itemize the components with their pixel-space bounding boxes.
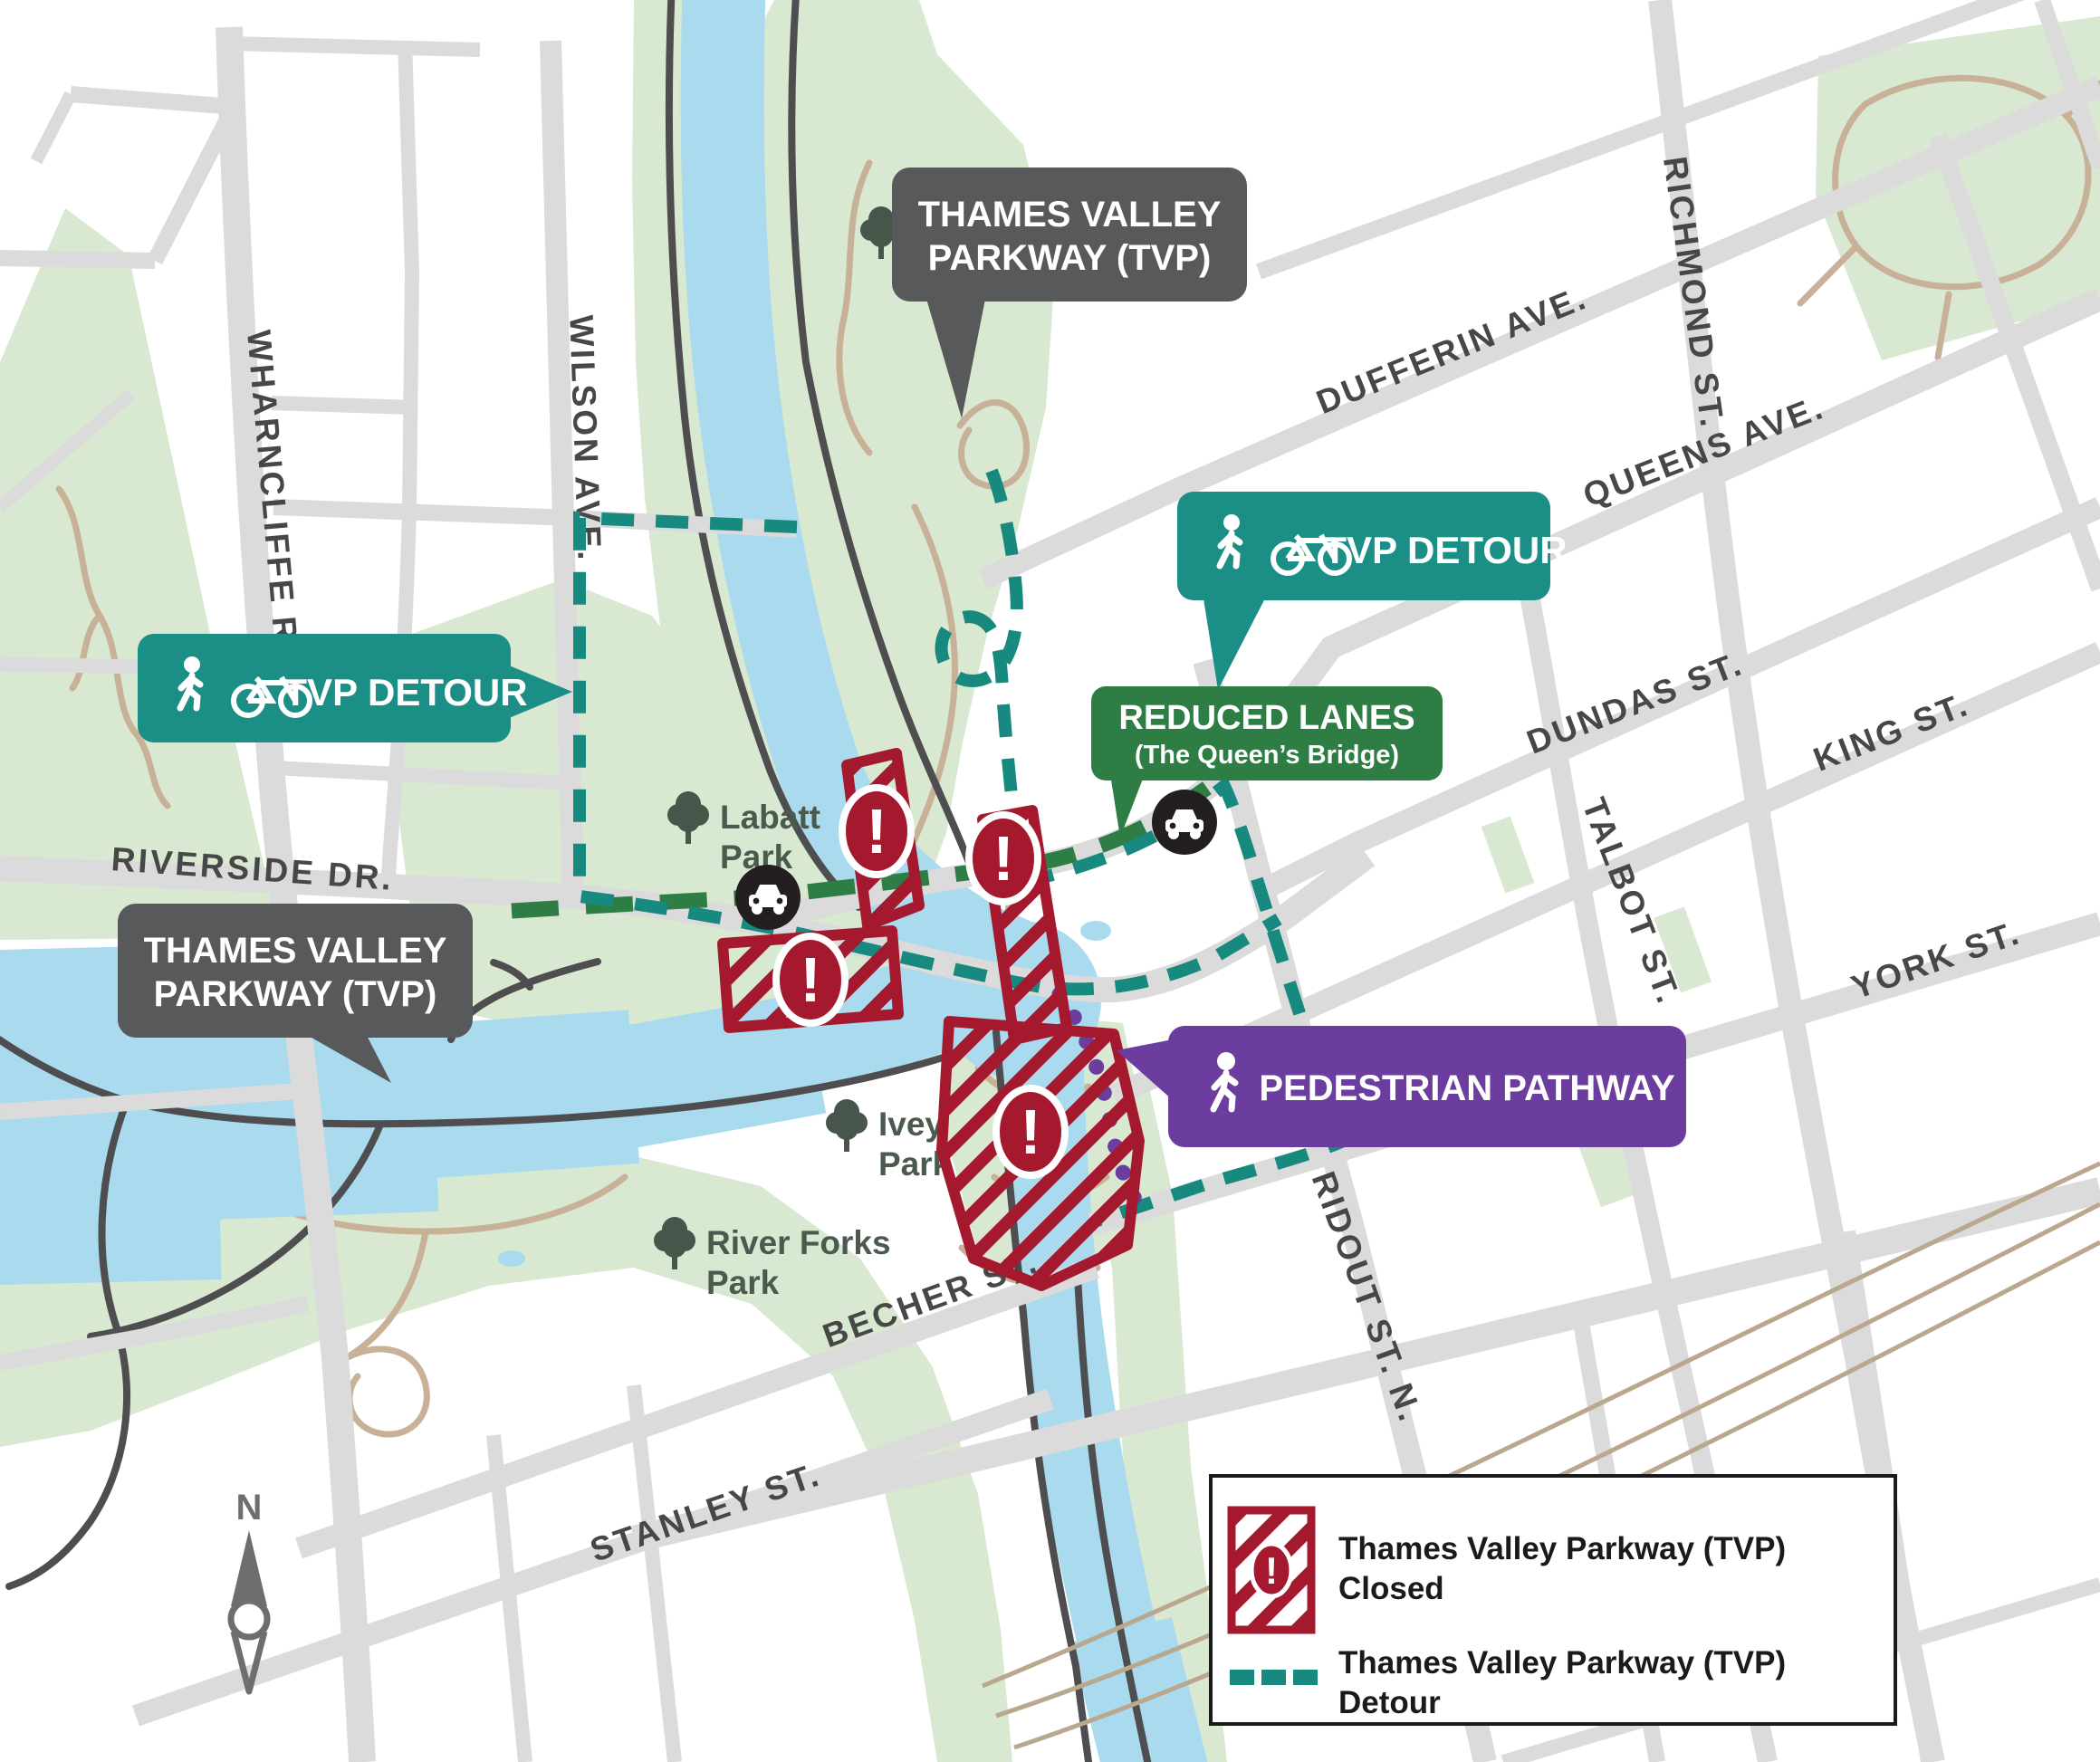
tree-icon xyxy=(826,1099,868,1152)
road-minor-h2 xyxy=(0,664,156,667)
road-tl-2 xyxy=(36,94,71,161)
park-label-labatt-1: Labatt xyxy=(720,799,820,836)
car-icon xyxy=(735,865,801,930)
road-bl-v2 xyxy=(634,1385,675,1762)
legend-detour-line2: Detour xyxy=(1338,1685,1441,1720)
callout-reduced-lanes: REDUCED LANES (The Queen’s Bridge) xyxy=(1091,686,1443,838)
legend-closed-icon: ! xyxy=(1232,1510,1311,1630)
legend-detour-icon xyxy=(1230,1670,1318,1685)
car-icon xyxy=(1152,790,1217,855)
compass-n-label: N xyxy=(236,1488,263,1527)
callout-pedestrian: PEDESTRIAN PATHWAY xyxy=(1117,1026,1686,1147)
exclamation-icon: ! xyxy=(996,1088,1065,1175)
callout-reduced-line2: (The Queen’s Bridge) xyxy=(1135,741,1399,770)
park-sliver-1 xyxy=(1482,817,1535,894)
park-label-ivey-1: Ivey xyxy=(878,1106,944,1143)
park-label-riverforks-2: Park xyxy=(706,1264,780,1301)
road-tl-3 xyxy=(155,110,232,261)
callout-tvp-bottom-line1: THAMES VALLEY xyxy=(144,931,447,971)
exclamation-icon: ! xyxy=(776,936,845,1023)
river-main-west-3 xyxy=(408,1087,634,1103)
callout-detour-right: TVP DETOUR xyxy=(1177,492,1568,690)
road-minor-h3 xyxy=(272,403,415,407)
road-tl-4 xyxy=(0,258,155,261)
callout-tvp-top-line2: PARKWAY (TVP) xyxy=(928,238,1212,278)
river-main-west-4 xyxy=(607,1053,815,1091)
svg-text:!: ! xyxy=(800,944,820,1015)
pond-forks-park xyxy=(498,1250,525,1267)
street-label-richmond: RICHMOND ST. xyxy=(1656,154,1731,431)
legend-detour-line1: Thames Valley Parkway (TVP) xyxy=(1338,1645,1786,1681)
map-canvas: WHARNCLIFFE RD. WILSON AVE. RICHMOND ST.… xyxy=(0,0,2100,1762)
callout-detour-right-label: TVP DETOUR xyxy=(1323,529,1567,571)
callout-pedestrian-label: PEDESTRIAN PATHWAY xyxy=(1259,1068,1675,1108)
exclamation-icon: ! xyxy=(969,815,1038,902)
pond-small xyxy=(1080,921,1111,941)
svg-text:!: ! xyxy=(1020,1096,1040,1167)
svg-text:!: ! xyxy=(1265,1549,1278,1592)
callout-reduced-line1: REDUCED LANES xyxy=(1118,699,1414,737)
callout-tvp-top-line1: THAMES VALLEY xyxy=(918,195,1222,235)
street-label-dufferin: DUFFERIN AVE. xyxy=(1311,279,1593,421)
legend-closed-line1: Thames Valley Parkway (TVP) xyxy=(1338,1531,1786,1566)
map-legend: ! Thames Valley Parkway (TVP) Closed Tha… xyxy=(1211,1476,1895,1724)
legend-closed-line2: Closed xyxy=(1338,1571,1444,1606)
callout-detour-left: TVP DETOUR xyxy=(138,634,572,742)
park-label-riverforks-1: River Forks xyxy=(706,1224,891,1261)
road-minor-h-top xyxy=(231,43,480,50)
callout-tvp-bottom-line2: PARKWAY (TVP) xyxy=(154,974,437,1014)
svg-text:!: ! xyxy=(992,823,1013,894)
svg-text:!: ! xyxy=(866,796,887,867)
callout-detour-left-label: TVP DETOUR xyxy=(283,671,527,713)
street-label-king: KING ST. xyxy=(1808,685,1974,779)
exclamation-icon: ! xyxy=(842,788,911,875)
road-tl-1 xyxy=(71,94,235,107)
